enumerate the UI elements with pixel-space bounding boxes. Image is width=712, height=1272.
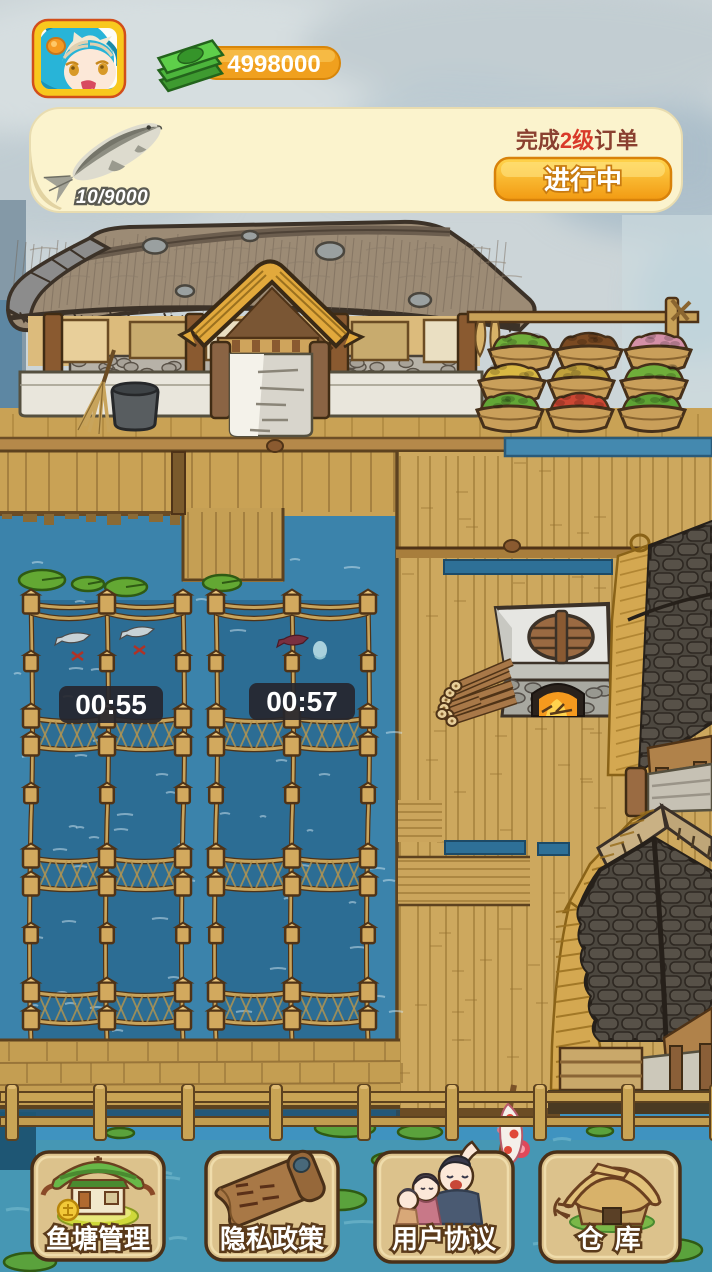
svg-text:4998000: 4998000	[227, 51, 320, 78]
svg-text:隐私政策: 隐私政策	[220, 1224, 324, 1254]
svg-text:进行中: 进行中	[544, 165, 622, 195]
svg-text:完成2级订单: 完成2级订单	[516, 128, 638, 153]
svg-text:00:57: 00:57	[266, 686, 338, 717]
svg-text:00:55: 00:55	[75, 689, 147, 720]
svg-text:10/9000: 10/9000	[76, 187, 148, 208]
svg-text:鱼塘管理: 鱼塘管理	[46, 1224, 150, 1254]
svg-text:仓 库: 仓 库	[576, 1224, 642, 1254]
svg-text:用户协议: 用户协议	[392, 1224, 497, 1254]
